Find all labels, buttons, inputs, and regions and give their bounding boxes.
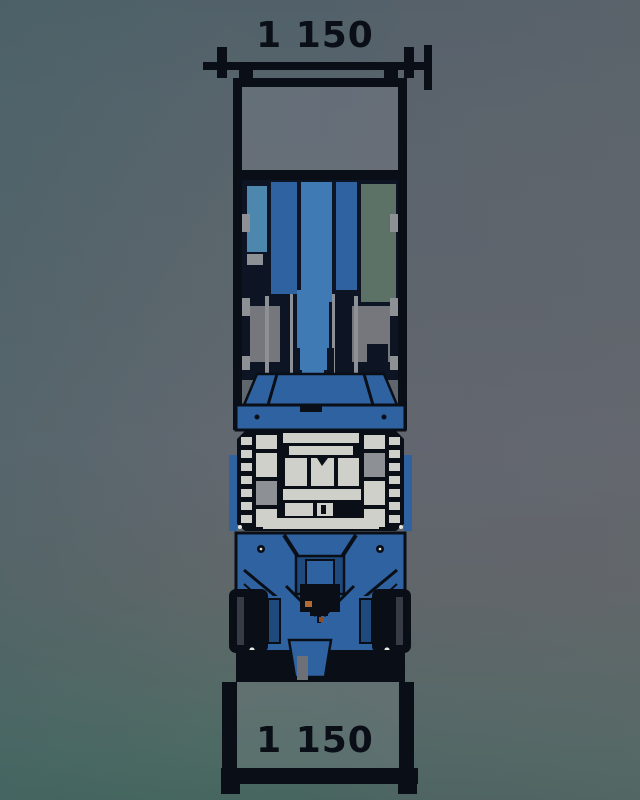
chassis-edge-right [404, 455, 412, 531]
mechanism-stack-left [256, 435, 277, 527]
chassis-screw-left-center [260, 548, 263, 551]
deck-top-bar [233, 170, 407, 180]
frame-side-right [399, 682, 414, 770]
dimension-top-end-right [404, 47, 414, 78]
wheel-left-hub [268, 599, 280, 643]
beam-notch [300, 405, 322, 412]
platform-extension-top-edge [233, 78, 407, 87]
deck-latch [247, 254, 263, 265]
dimension-top-extension-right [424, 45, 432, 90]
chassis [229, 533, 411, 653]
scissor-mechanism [229, 431, 412, 531]
wheel-right-tread [396, 597, 403, 645]
wheel-left [229, 589, 268, 653]
wheel-right-hub [360, 599, 372, 643]
dimension-top-label: 1 150 [256, 15, 374, 56]
platform-rail-left [233, 78, 242, 430]
deck-panel-3 [336, 182, 357, 290]
platform-extension-interior [242, 87, 398, 172]
deck-panel-2 [271, 182, 297, 294]
chassis-edge-left [229, 455, 237, 531]
center-mast [297, 290, 329, 370]
mechanism-screw-left [238, 525, 242, 529]
chassis-screw-right-center [379, 548, 382, 551]
dimension-top-end-left [217, 47, 227, 78]
wheel-left-tread [237, 597, 244, 645]
deck-opening-right-notch [367, 344, 388, 362]
scissor-lift-top-view-drawing: 1 150 [0, 0, 640, 800]
tow-tongue [289, 640, 331, 677]
mechanism-screw-right [399, 525, 403, 529]
dimension-bottom-label: 1 150 [256, 720, 374, 761]
beam-bolt-right [382, 415, 387, 420]
beam-bolt-left [255, 415, 260, 420]
dimension-bottom-line [221, 768, 418, 784]
deck-panel-right [361, 184, 396, 302]
dimension-bottom-end-right [398, 784, 417, 794]
tongue-gap [297, 656, 308, 680]
wheel-right [372, 589, 411, 653]
platform-deck [233, 170, 407, 430]
platform-rail-right [398, 78, 407, 430]
deck-end-trapezoid [244, 374, 397, 405]
dimension-bottom-end-left [221, 784, 240, 794]
mechanism-stack-right [364, 435, 385, 527]
frame-side-left [222, 682, 237, 770]
hydraulic-fitting-1 [305, 601, 312, 607]
hydraulic-fitting-2 [319, 617, 324, 622]
deck-panel-center [301, 182, 332, 302]
diagram-canvas: 1 150 [0, 0, 640, 800]
